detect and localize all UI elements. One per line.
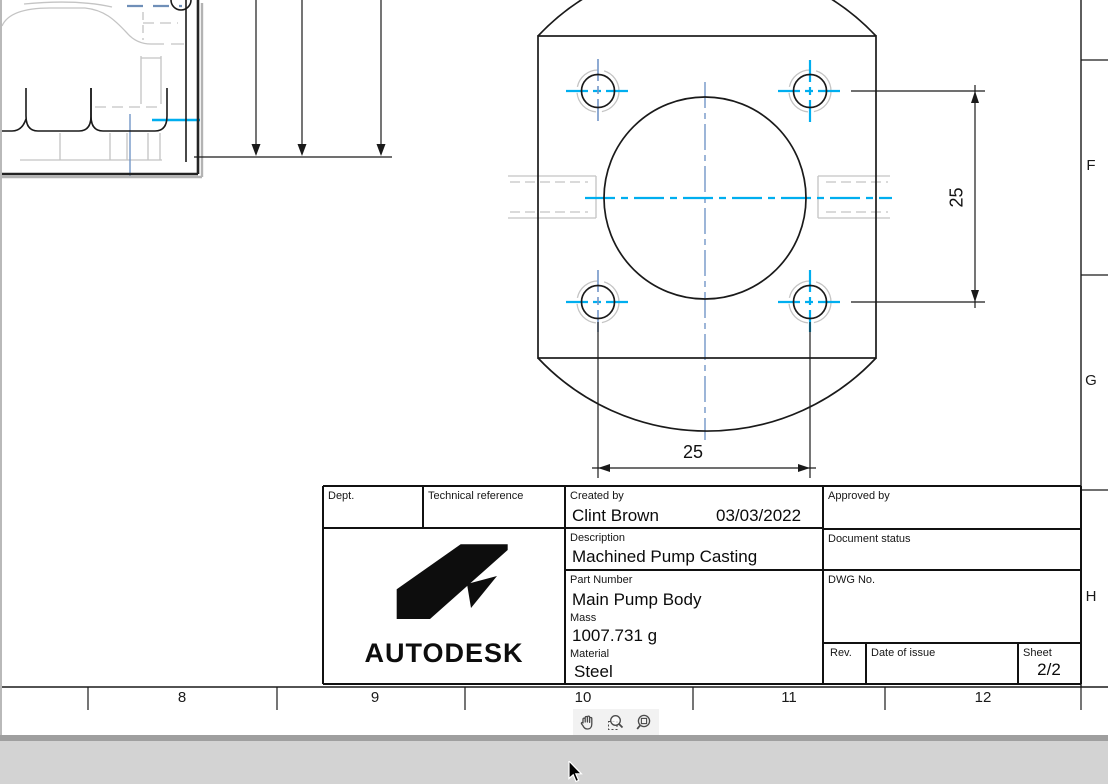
horizontal-scrollbar-track[interactable] [0, 735, 1108, 784]
sheet-value: 2/2 [1018, 660, 1080, 680]
autodesk-logo-mark [397, 544, 508, 619]
navigation-toolbar [573, 709, 659, 735]
approved-by-label: Approved by [828, 490, 890, 502]
dimension-value-vertical[interactable]: 25 [947, 177, 968, 219]
material-label: Material [570, 648, 609, 660]
dimension-value-horizontal[interactable]: 25 [673, 442, 713, 463]
zoom-selection-icon[interactable] [604, 711, 628, 733]
created-by-value: Clint Brown [572, 506, 659, 526]
ruler-number-9: 9 [353, 689, 397, 706]
description-label: Description [570, 532, 625, 544]
zone-letter-g: G [1082, 372, 1100, 389]
zone-letter-f: F [1082, 157, 1100, 174]
rev-label: Rev. [830, 647, 852, 659]
zoom-window-icon[interactable] [633, 711, 657, 733]
ruler-number-8: 8 [160, 689, 204, 706]
part-number-label: Part Number [570, 574, 632, 586]
ruler-number-11: 11 [767, 689, 811, 706]
ruler-number-12: 12 [961, 689, 1005, 706]
date-of-issue-label: Date of issue [871, 647, 935, 659]
section-view-partial[interactable] [0, 0, 202, 177]
sheet-label: Sheet [1023, 647, 1052, 659]
pan-hand-icon[interactable] [575, 711, 599, 733]
mass-value: 1007.731 g [572, 626, 657, 646]
front-view-flange[interactable] [508, 0, 892, 440]
part-number-value: Main Pump Body [572, 590, 701, 610]
material-value: Steel [574, 662, 613, 682]
application-viewport: F G H 8 9 10 11 12 25 25 Dept. Technical… [0, 0, 1108, 784]
technical-reference-label: Technical reference [428, 490, 523, 502]
autodesk-wordmark: AUTODESK [323, 638, 565, 669]
zone-letter-h: H [1082, 588, 1100, 605]
ruler-number-10: 10 [561, 689, 605, 706]
scrollbar-edge [0, 735, 1108, 741]
mass-label: Mass [570, 612, 596, 624]
created-date-value: 03/03/2022 [716, 506, 801, 526]
mouse-cursor [568, 761, 586, 784]
dept-label: Dept. [328, 490, 354, 502]
drawing-sheet-canvas[interactable] [0, 0, 1108, 737]
description-value: Machined Pump Casting [572, 547, 757, 567]
document-status-label: Document status [828, 533, 911, 545]
viewport-left-edge [0, 0, 2, 737]
created-by-label: Created by [570, 490, 624, 502]
projection-dimension-arrows[interactable] [194, 0, 392, 157]
dwg-no-label: DWG No. [828, 574, 875, 586]
